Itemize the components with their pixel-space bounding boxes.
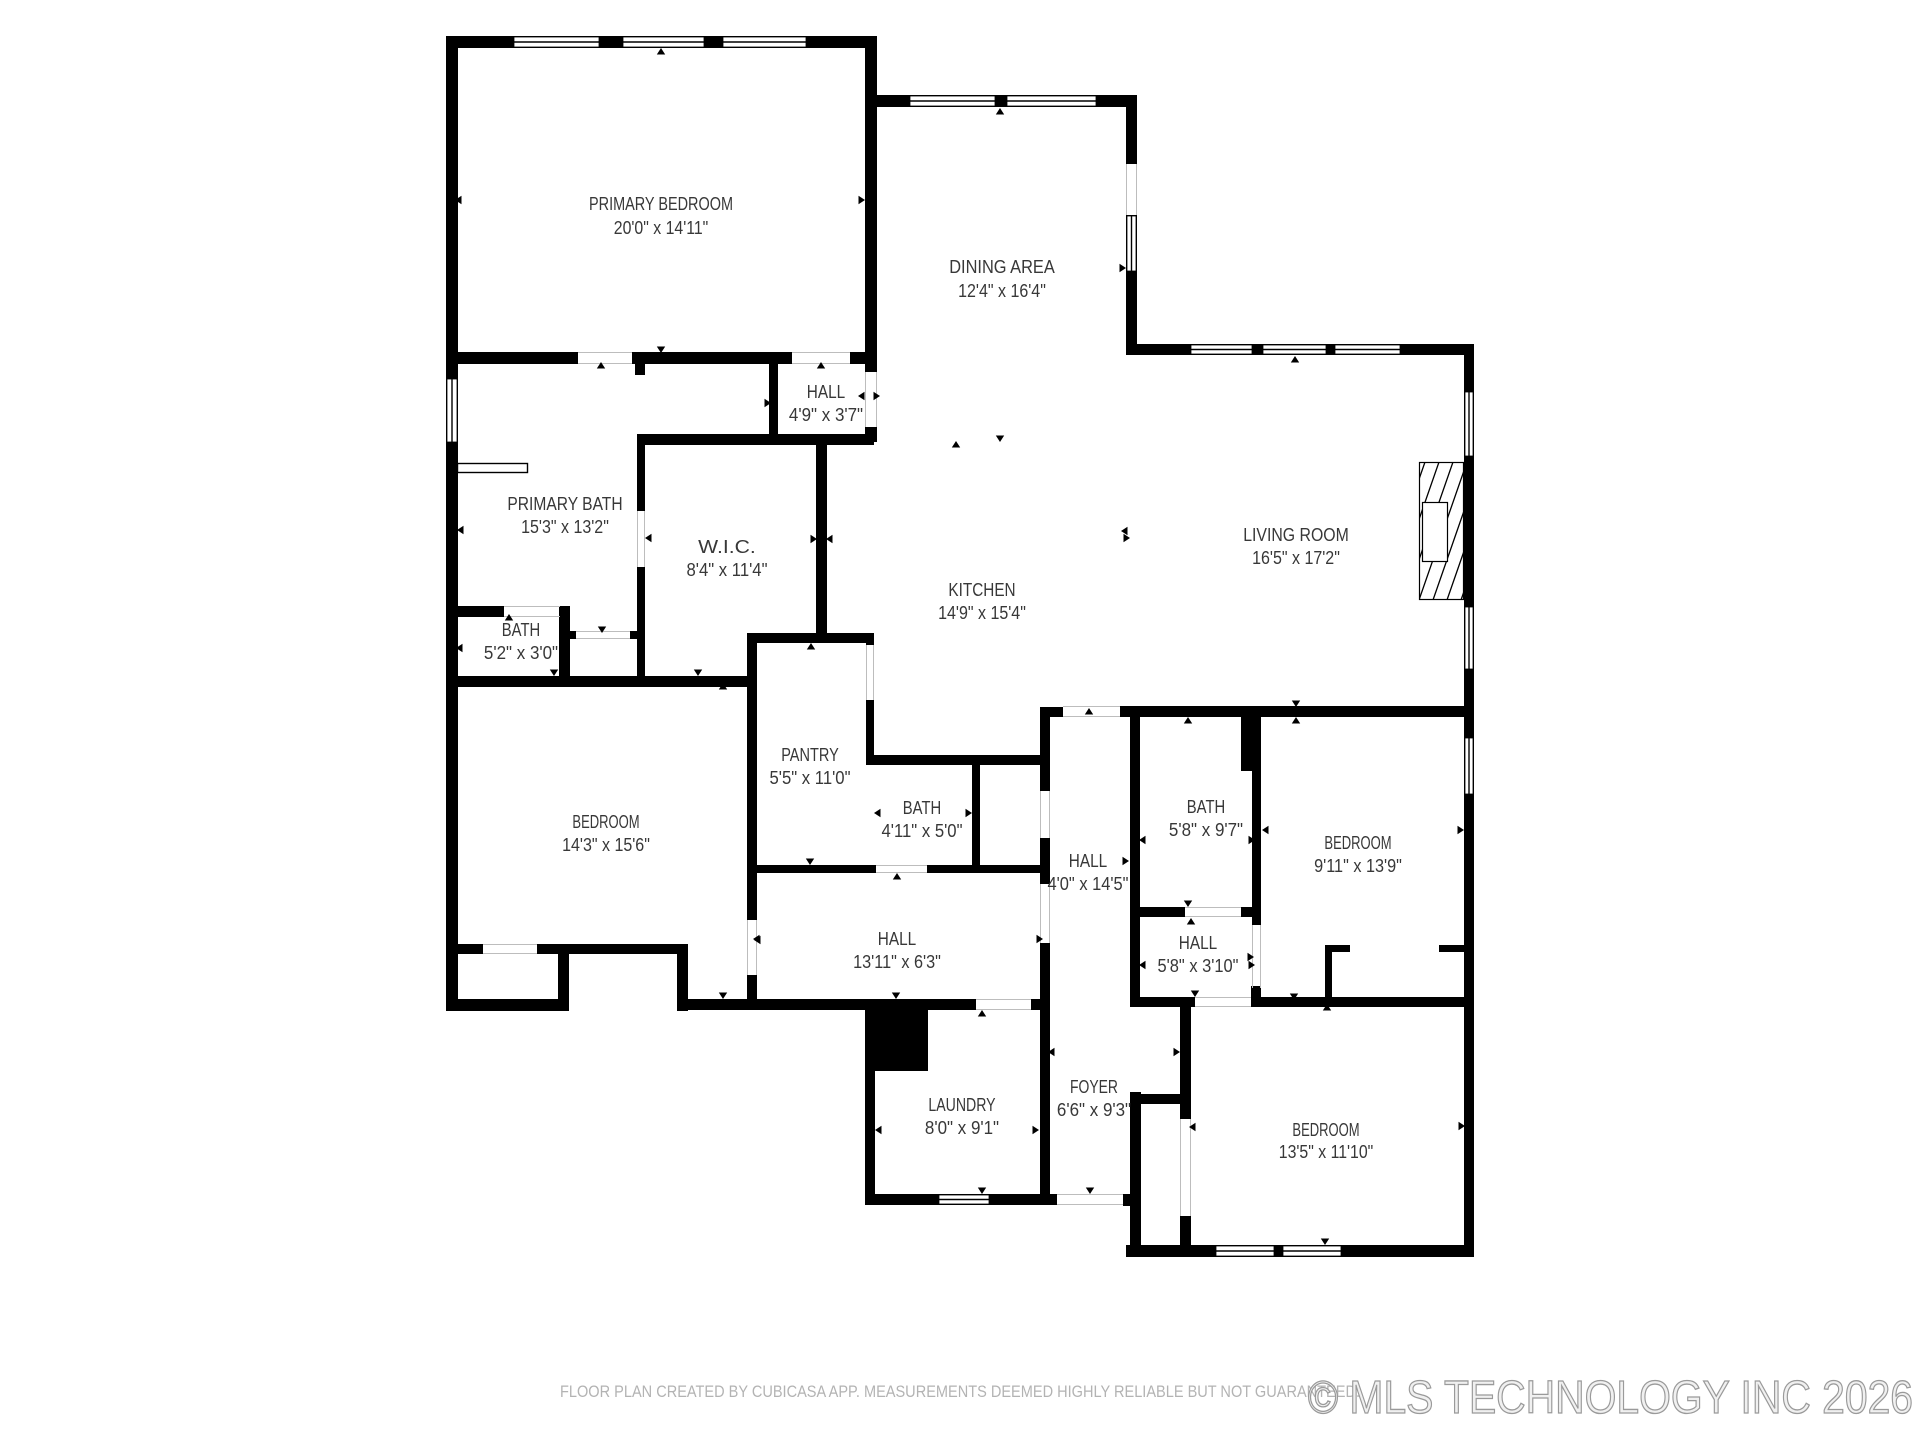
svg-text:4'11" x 5'0": 4'11" x 5'0" <box>882 820 963 841</box>
svg-text:4'0" x 14'5": 4'0" x 14'5" <box>1048 873 1129 894</box>
svg-text:© MLS TECHNOLOGY INC 2026: © MLS TECHNOLOGY INC 2026 <box>1308 1371 1913 1423</box>
svg-text:HALL: HALL <box>1069 850 1107 871</box>
svg-text:LAUNDRY: LAUNDRY <box>928 1094 995 1115</box>
svg-text:KITCHEN: KITCHEN <box>948 579 1015 600</box>
svg-text:W.I.C.: W.I.C. <box>698 536 756 557</box>
svg-text:PANTRY: PANTRY <box>781 744 839 765</box>
svg-text:DINING AREA: DINING AREA <box>949 256 1055 277</box>
svg-text:8'4" x 11'4": 8'4" x 11'4" <box>687 559 768 580</box>
svg-text:16'5" x 17'2": 16'5" x 17'2" <box>1252 547 1340 568</box>
svg-text:12'4" x 16'4": 12'4" x 16'4" <box>958 280 1046 301</box>
svg-text:20'0" x 14'11": 20'0" x 14'11" <box>614 217 709 238</box>
svg-text:13'5" x 11'10": 13'5" x 11'10" <box>1279 1141 1374 1162</box>
svg-text:13'11" x 6'3": 13'11" x 6'3" <box>853 951 941 972</box>
svg-text:15'3" x 13'2": 15'3" x 13'2" <box>521 516 609 537</box>
svg-text:14'9" x 15'4": 14'9" x 15'4" <box>938 602 1026 623</box>
svg-text:8'0" x 9'1": 8'0" x 9'1" <box>925 1117 999 1138</box>
svg-text:14'3" x 15'6": 14'3" x 15'6" <box>562 834 650 855</box>
svg-text:5'8" x 9'7": 5'8" x 9'7" <box>1169 819 1243 840</box>
svg-text:BEDROOM: BEDROOM <box>1292 1119 1359 1140</box>
svg-text:BEDROOM: BEDROOM <box>572 811 639 832</box>
svg-text:BEDROOM: BEDROOM <box>1324 832 1391 853</box>
svg-text:BATH: BATH <box>1187 796 1225 817</box>
svg-text:5'8" x 3'10": 5'8" x 3'10" <box>1158 955 1239 976</box>
svg-text:PRIMARY BEDROOM: PRIMARY BEDROOM <box>589 193 733 214</box>
svg-text:6'6" x 9'3": 6'6" x 9'3" <box>1057 1099 1131 1120</box>
svg-text:LIVING ROOM: LIVING ROOM <box>1243 524 1349 545</box>
svg-text:HALL: HALL <box>878 928 916 949</box>
svg-text:FOYER: FOYER <box>1070 1076 1118 1097</box>
svg-text:PRIMARY BATH: PRIMARY BATH <box>507 493 622 514</box>
svg-text:BATH: BATH <box>903 797 941 818</box>
svg-text:BATH: BATH <box>502 619 540 640</box>
svg-text:9'11" x 13'9": 9'11" x 13'9" <box>1314 855 1402 876</box>
svg-text:FLOOR PLAN CREATED BY CUBICASA: FLOOR PLAN CREATED BY CUBICASA APP. MEAS… <box>560 1382 1360 1401</box>
svg-text:4'9" x 3'7": 4'9" x 3'7" <box>789 404 863 425</box>
svg-text:HALL: HALL <box>1179 932 1217 953</box>
svg-text:HALL: HALL <box>807 381 845 402</box>
svg-text:5'5" x 11'0": 5'5" x 11'0" <box>770 767 851 788</box>
svg-text:5'2" x 3'0": 5'2" x 3'0" <box>484 642 558 663</box>
